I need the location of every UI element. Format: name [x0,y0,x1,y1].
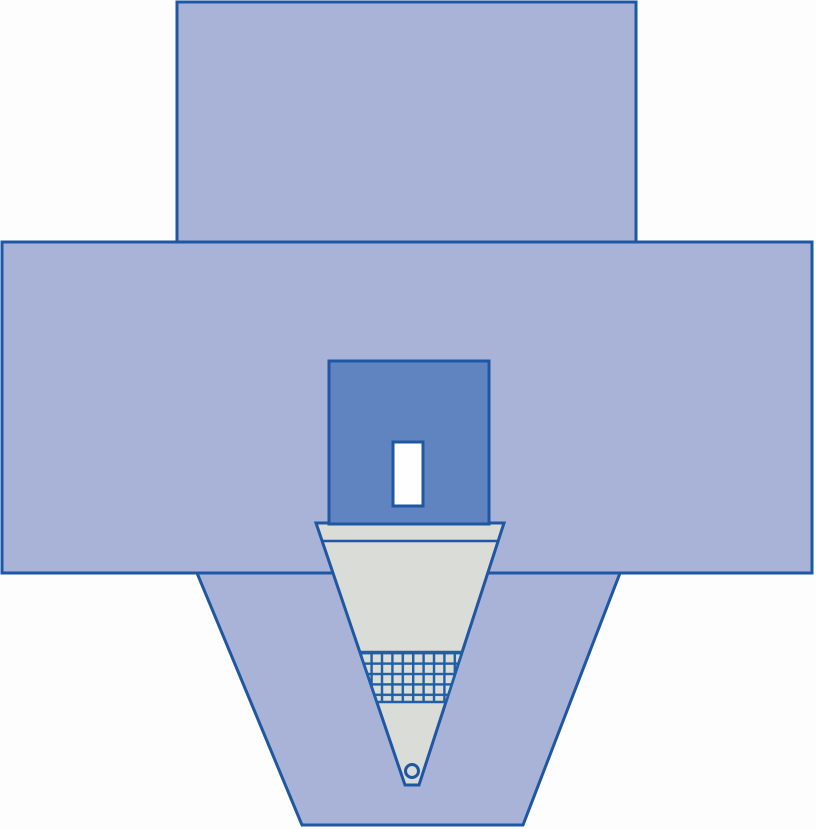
pouch-filter-mesh [360,652,462,702]
fenestration-opening [393,442,423,506]
pouch-drain-port [406,765,419,778]
surgical-drape-illustration [0,0,816,829]
drape-top-panel [177,2,636,243]
illustration-canvas [0,0,816,829]
